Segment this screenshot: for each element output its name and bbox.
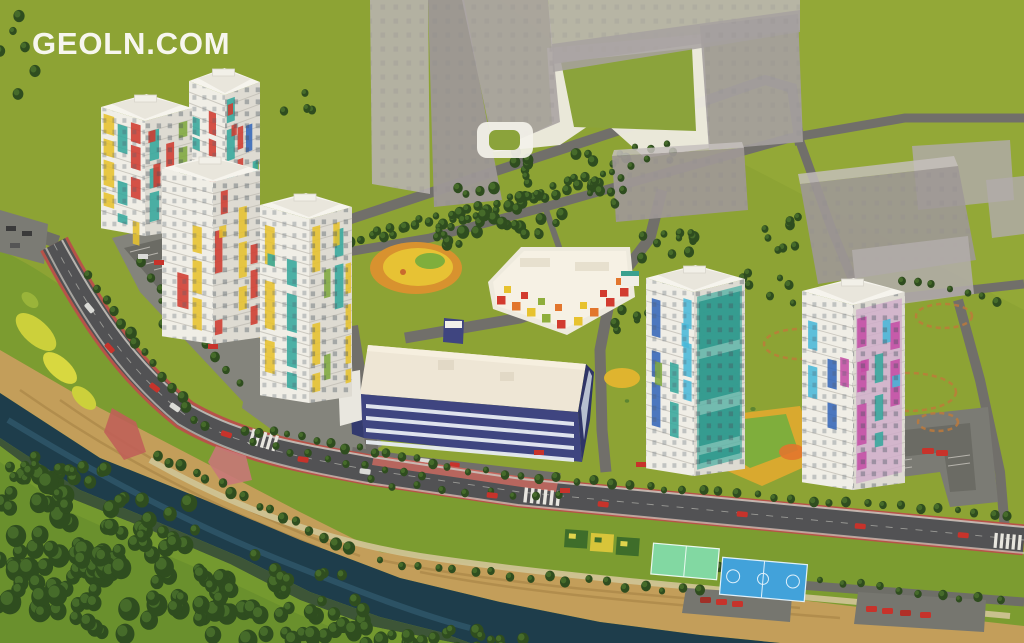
svg-text:GEOLN.COM: GEOLN.COM <box>32 26 230 61</box>
